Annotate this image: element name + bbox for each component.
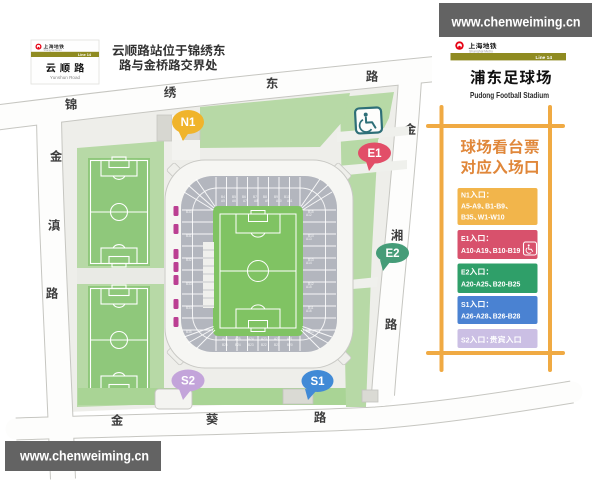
svg-text:A5-A9: A5-A9 — [461, 204, 481, 211]
svg-text:B26-B28: B26-B28 — [493, 314, 521, 321]
svg-text:A22: A22 — [274, 337, 280, 341]
svg-text:Yunshun Road: Yunshun Road — [50, 75, 81, 80]
svg-text:E2: E2 — [461, 270, 470, 277]
svg-text:Pudong Football Stadium: Pudong Football Stadium — [470, 91, 549, 100]
svg-text:B20-B25: B20-B25 — [493, 282, 521, 289]
svg-text:Line 14: Line 14 — [535, 55, 552, 61]
svg-text:A12: A12 — [306, 213, 312, 217]
svg-text:B10-B19: B10-B19 — [493, 248, 521, 255]
svg-text:S1: S1 — [461, 302, 470, 309]
svg-text:A17: A17 — [306, 329, 312, 333]
svg-text:E2: E2 — [385, 248, 399, 260]
svg-text:B35: B35 — [461, 215, 474, 222]
svg-text:A7: A7 — [243, 199, 247, 203]
svg-text:N1: N1 — [181, 117, 196, 129]
svg-text:E1: E1 — [461, 236, 470, 243]
svg-text:Line 14: Line 14 — [78, 53, 92, 57]
svg-text:Shanghai Metro: Shanghai Metro — [44, 48, 63, 52]
svg-text:B35: B35 — [186, 330, 192, 334]
svg-text:A15: A15 — [306, 285, 312, 289]
svg-text:N1: N1 — [461, 193, 470, 200]
svg-text:A25: A25 — [235, 337, 241, 341]
svg-text:W1-W10: W1-W10 — [478, 215, 505, 222]
svg-text:A6: A6 — [232, 199, 236, 203]
svg-text:A13: A13 — [306, 237, 312, 241]
svg-text:A9: A9 — [265, 199, 269, 203]
svg-text:A11: A11 — [287, 199, 293, 203]
svg-text:B30: B30 — [186, 210, 192, 214]
svg-text:A26-A28: A26-A28 — [461, 314, 489, 321]
svg-text:B31: B31 — [186, 234, 192, 238]
svg-text:A14: A14 — [306, 261, 312, 265]
svg-text:B22: B22 — [261, 343, 267, 347]
svg-text:B25: B25 — [222, 343, 228, 347]
svg-text:B1-B9: B1-B9 — [485, 204, 505, 211]
svg-text:A26: A26 — [222, 337, 228, 341]
svg-text:A5: A5 — [221, 199, 225, 203]
svg-text:S1: S1 — [310, 376, 325, 388]
svg-text:A8: A8 — [254, 199, 258, 203]
svg-text:A20-A25: A20-A25 — [461, 282, 489, 289]
svg-text:B21: B21 — [274, 343, 280, 347]
svg-text:A24: A24 — [248, 337, 254, 341]
svg-text:www.chenweiming.cn: www.chenweiming.cn — [19, 448, 149, 464]
svg-text:B34: B34 — [186, 306, 192, 310]
svg-text:A16: A16 — [306, 309, 312, 313]
svg-text:A10: A10 — [276, 199, 282, 203]
svg-text:B23: B23 — [248, 343, 254, 347]
svg-text:S2: S2 — [461, 338, 470, 345]
svg-text:B32: B32 — [186, 258, 192, 262]
svg-text:A10-A19: A10-A19 — [461, 248, 489, 255]
svg-text:B20: B20 — [287, 343, 293, 347]
svg-text:Shanghai Metro: Shanghai Metro — [469, 49, 493, 53]
svg-text:E1: E1 — [367, 148, 382, 160]
svg-text:www.chenweiming.cn: www.chenweiming.cn — [451, 14, 581, 30]
svg-text:A21: A21 — [287, 337, 293, 341]
svg-text:B33: B33 — [186, 282, 192, 286]
svg-text:S2: S2 — [181, 376, 195, 388]
svg-text:A23: A23 — [261, 337, 267, 341]
svg-text:B24: B24 — [235, 343, 241, 347]
